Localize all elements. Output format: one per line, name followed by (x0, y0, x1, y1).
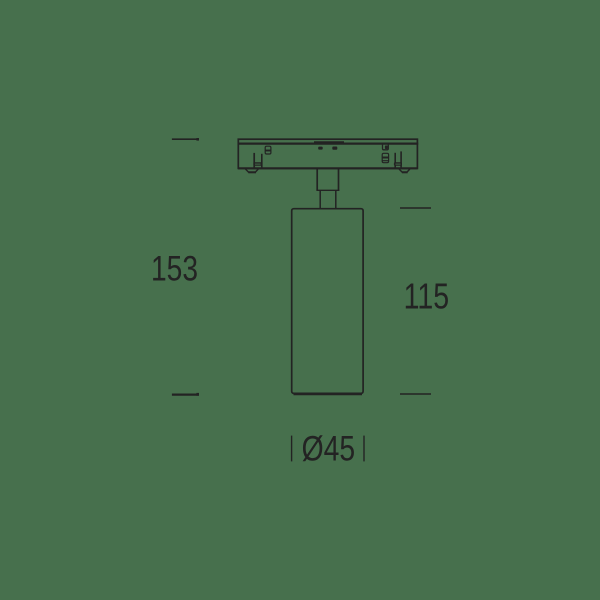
svg-text:153: 153 (151, 249, 198, 288)
svg-text:Ø45: Ø45 (302, 429, 356, 469)
svg-text:115: 115 (404, 276, 450, 317)
